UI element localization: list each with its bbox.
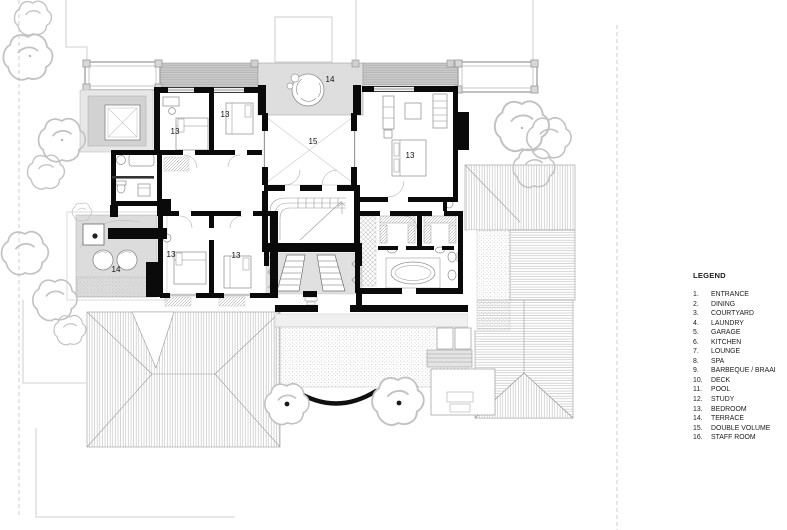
legend-item-label: DECK [711,376,730,386]
legend-item: 16.STAFF ROOM [693,433,776,443]
spa-tub [93,250,113,270]
entry-mat [164,157,189,171]
legend-item: 12.STUDY [693,395,776,405]
legend-item-number: 1. [693,290,711,300]
legend-item-label: DOUBLE VOLUME [711,424,770,434]
legend-item: 11.POOL [693,385,776,395]
legend-item-number: 6. [693,338,711,348]
legend-item-number: 16. [693,433,711,443]
legend-item-label: STAFF ROOM [711,433,756,443]
legend-item: 3.COURTYARD [693,309,776,319]
legend-item-label: POOL [711,385,730,395]
legend-item: 8.SPA [693,357,776,367]
entrance-steps [266,253,362,305]
room-label-bedroom-1: 13 [171,127,180,136]
legend-item-label: TERRACE [711,414,744,424]
legend-item-label: STUDY [711,395,734,405]
legend-title: LEGEND [693,272,776,280]
legend-item-number: 10. [693,376,711,386]
legend-item-number: 15. [693,424,711,434]
staircase-upper [270,198,346,240]
room-label-bedroom-3: 13 [406,151,415,160]
legend-item-label: COURTYARD [711,309,754,319]
legend-item-number: 12. [693,395,711,405]
legend-item: 1.ENTRANCE [693,290,776,300]
floorplan-page: 14 13 13 15 13 13 13 14 LEGEND 1.ENTRANC… [0,0,787,530]
legend-item: 13.BEDROOM [693,405,776,415]
legend-item: 15.DOUBLE VOLUME [693,424,776,434]
room-label-bedroom-4: 13 [167,250,176,259]
room-label-double-volume: 15 [309,137,318,146]
room-label-terrace-left: 14 [112,265,121,274]
legend-item: 14.TERRACE [693,414,776,424]
legend-item-label: BARBEQUE / BRAAI [711,366,776,376]
legend-item-number: 4. [693,319,711,329]
legend-item-label: LAUNDRY [711,319,744,329]
legend: LEGEND 1.ENTRANCE 2.DINING 3.COURTYARD 4… [693,272,776,443]
legend-item: 6.KITCHEN [693,338,776,348]
legend-item-label: ENTRANCE [711,290,749,300]
legend-item-label: KITCHEN [711,338,741,348]
pool-steps [427,350,472,367]
legend-item-number: 14. [693,414,711,424]
legend-item-number: 11. [693,385,711,395]
planter-strip [77,277,157,297]
roof-bottom-left [87,312,280,447]
room-label-bedroom-5: 13 [232,251,241,260]
legend-item-label: GARAGE [711,328,740,338]
legend-item: 2.DINING [693,300,776,310]
legend-item: 10.DECK [693,376,776,386]
pergola-left [83,60,162,91]
legend-item: 9.BARBEQUE / BRAAI [693,366,776,376]
legend-item: 7.LOUNGE [693,347,776,357]
legend-item-label: LOUNGE [711,347,740,357]
legend-item-label: BEDROOM [711,405,747,415]
courtyard [80,90,153,152]
deck-band-right [363,63,458,85]
room-label-bedroom-2: 13 [221,110,230,119]
pergola-right [455,60,538,93]
legend-item-number: 7. [693,347,711,357]
legend-item: 4.LAUNDRY [693,319,776,329]
floor-plan-drawing: 14 13 13 15 13 13 13 14 [0,0,787,530]
legend-item-number: 8. [693,357,711,367]
deck-band-left [160,63,258,88]
legend-item-number: 5. [693,328,711,338]
legend-item-label: SPA [711,357,724,367]
legend-item: 5.GARAGE [693,328,776,338]
room-label-terrace-top: 14 [326,75,335,84]
legend-item-number: 13. [693,405,711,415]
legend-item-label: DINING [711,300,735,310]
legend-item-number: 2. [693,300,711,310]
legend-item-number: 3. [693,309,711,319]
legend-item-number: 9. [693,366,711,376]
